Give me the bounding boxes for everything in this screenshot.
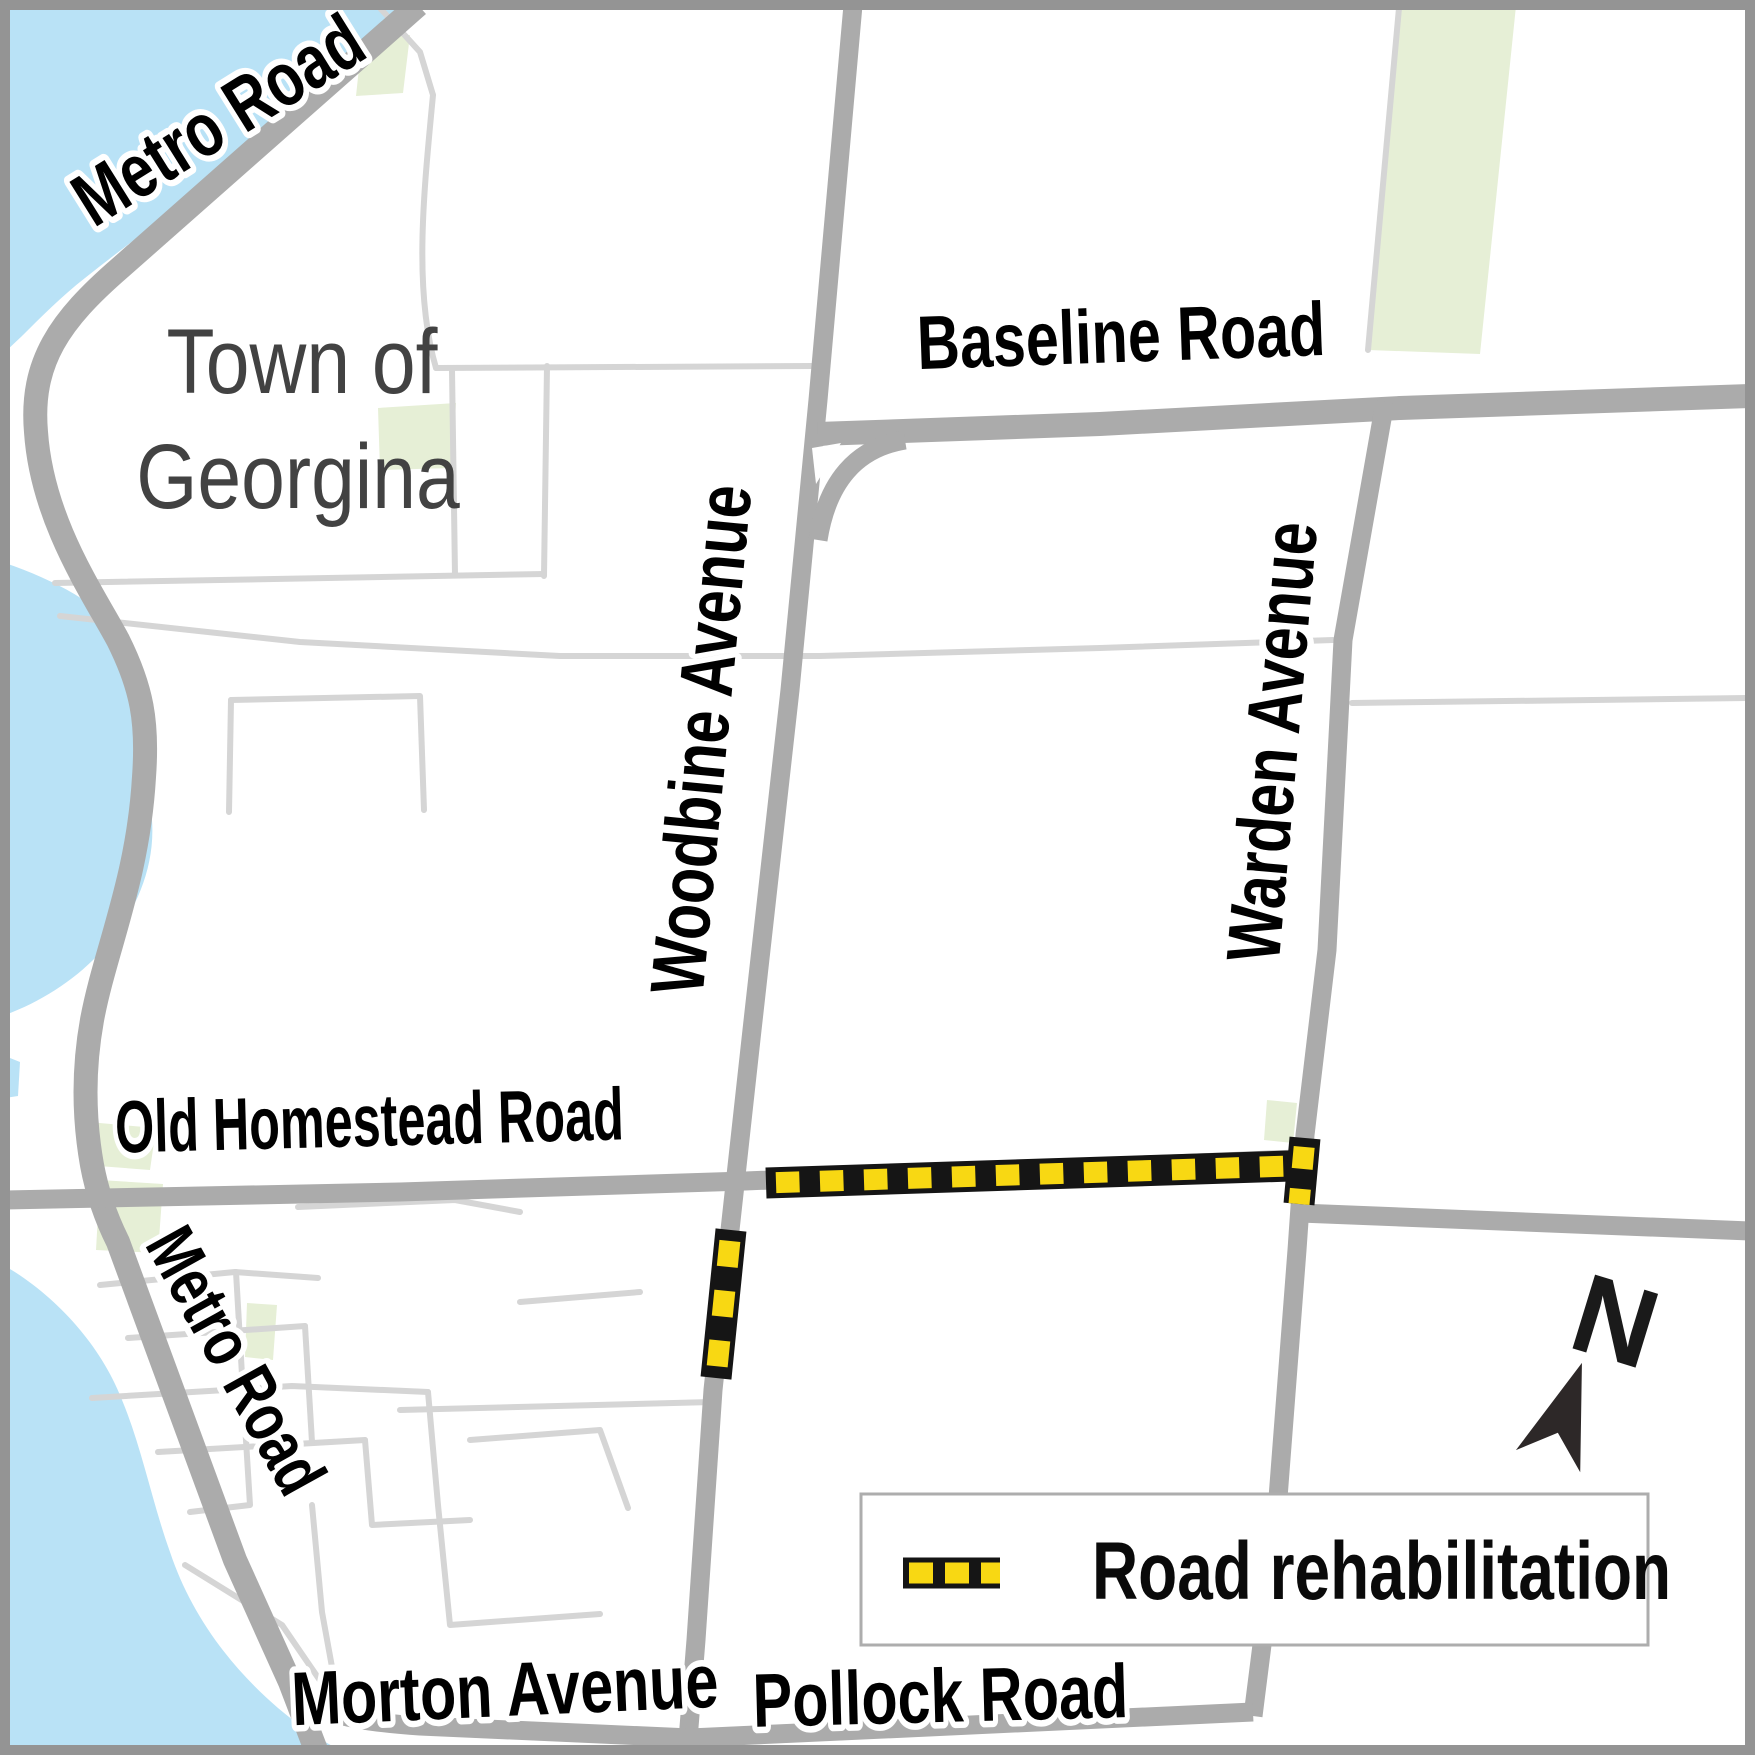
thin-road — [436, 366, 812, 368]
thin-road — [520, 1292, 640, 1302]
lake-left-middle — [5, 563, 152, 1015]
thin-road — [1352, 698, 1747, 703]
rehab-woodbine-dashes — [716, 1230, 731, 1378]
old-homestead-road-label: Old Homestead Road — [114, 1074, 625, 1169]
georgina-road-map: Metro Road Town of Georgina Baseline Roa… — [0, 0, 1755, 1755]
region-label-line1: Town of — [166, 311, 437, 413]
north-arrow-letter: N — [1558, 1250, 1672, 1393]
pollock-road-label-text: Pollock Road — [752, 1649, 1130, 1744]
morton-avenue-label-text: Morton Avenue — [290, 1639, 720, 1742]
green-strip-topright — [1368, 6, 1516, 354]
warden-avenue-label: Warden Avenue — [1211, 518, 1334, 965]
baseline-road-label-text: Baseline Road — [916, 287, 1327, 386]
rehab-layer — [716, 1138, 1305, 1378]
thin-road — [544, 366, 547, 576]
warden-avenue-label-text: Warden Avenue — [1211, 518, 1334, 965]
woodbine-avenue-label: Woodbine Avenue — [635, 481, 768, 998]
legend: Road rehabilitation — [861, 1494, 1671, 1645]
morton-avenue-label: Morton Avenue — [290, 1639, 720, 1742]
region-label-line2: Georgina — [136, 426, 460, 528]
legend-item-label-text: Road rehabilitation — [1092, 1524, 1671, 1617]
map-canvas: Metro Road Town of Georgina Baseline Roa… — [0, 0, 1755, 1755]
north-arrow-n: N — [1558, 1250, 1672, 1393]
north-arrow: N — [1516, 1250, 1672, 1473]
woodbine-avenue-label-text: Woodbine Avenue — [635, 481, 768, 998]
baseline-road-path — [818, 396, 1750, 434]
thin-road — [400, 1402, 712, 1410]
thin-road — [365, 1440, 470, 1525]
baseline-road-label: Baseline Road — [916, 287, 1327, 386]
east-road-from-warden — [1300, 1213, 1750, 1231]
thin-road — [428, 1392, 600, 1625]
thin-road — [55, 574, 544, 583]
green-patch-warden — [1264, 1100, 1297, 1143]
thin-road — [231, 696, 424, 810]
legend-item-label: Road rehabilitation — [1092, 1524, 1671, 1617]
old-homestead-road-label-text: Old Homestead Road — [114, 1074, 625, 1169]
pollock-road-label: Pollock Road — [752, 1649, 1130, 1744]
rehab-old-homestead-base — [766, 1166, 1291, 1183]
thin-road — [229, 700, 231, 812]
thin-road — [470, 1430, 628, 1508]
